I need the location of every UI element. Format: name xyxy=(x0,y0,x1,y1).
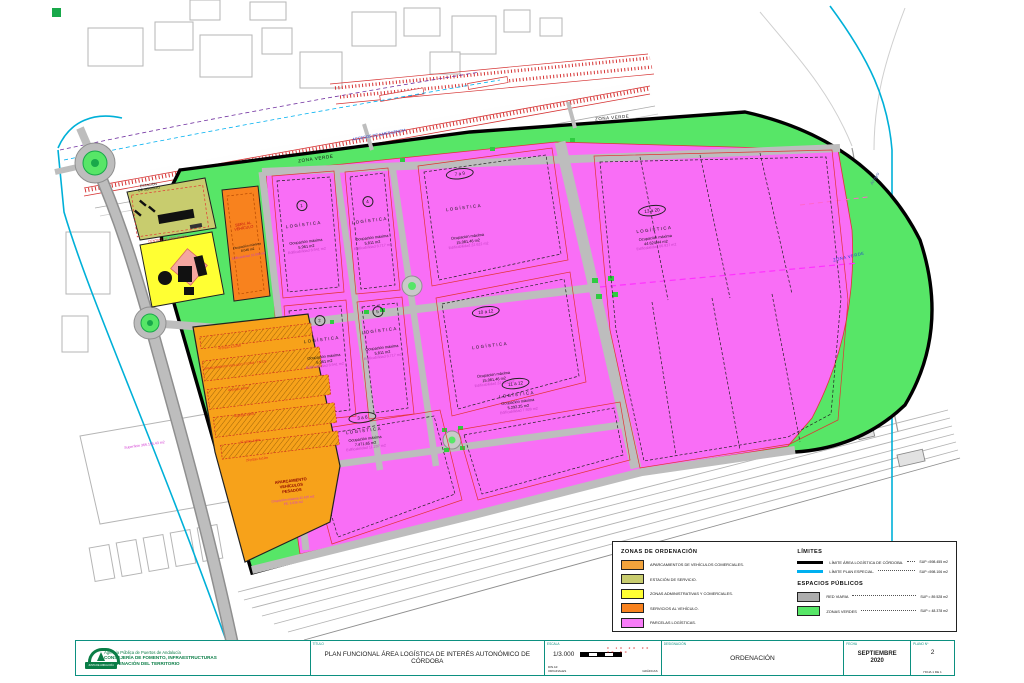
agency-cell: JUNTA DE ANDALUCÍA Agencia Pública de Pu… xyxy=(76,641,311,675)
dotted-leader xyxy=(907,561,915,562)
parcel-name: LOGÍSTICA xyxy=(328,213,412,228)
parcel-name: LOGÍSTICA xyxy=(338,323,422,338)
designacion-value: ORDENACIÓN xyxy=(662,641,844,675)
parcel-badge: 1 xyxy=(295,200,307,212)
parcel-badge: 7 a 9 xyxy=(445,167,474,181)
legend-box: ZONAS DE ORDENACIÓN APARCAMIENTOS DE VEH… xyxy=(612,541,957,632)
line-sample-cyan xyxy=(797,570,823,573)
fecha-year: 2020 xyxy=(870,658,883,666)
din-note: DIN A3 ORIGINALES xyxy=(548,666,566,673)
designacion-label: DESIGNACIÓN xyxy=(664,642,686,646)
legend-item-aparcamientos: APARCAMIENTOS DE VEHÍCULOS COMERCIALES. xyxy=(621,560,797,570)
parcel-label-7-9: 7 a 9 LOGÍSTICA Ocupación máxima 15.081,… xyxy=(417,163,510,253)
legend-limites-column: LÍMITES LÍMITE ÁREA LOGÍSTICA DE CÓRDOBA… xyxy=(797,549,948,624)
legend-limites-title: LÍMITES xyxy=(797,549,948,555)
legend-item-limite-area: LÍMITE ÁREA LOGÍSTICA DE CÓRDOBA. SUP =5… xyxy=(797,560,948,565)
designacion-cell: DESIGNACIÓN ORDENACIÓN xyxy=(662,641,845,675)
plan-sheet: ZONA VERDE ZONA VERDE ZONA VERDE ACCESOS… xyxy=(0,0,1024,683)
swatch-aparcamientos xyxy=(621,560,644,570)
corner-mark xyxy=(52,8,61,17)
logo-triangle xyxy=(97,652,105,661)
legend-item-red-viaria: RED VIARIA SUP = 89.528 m2 xyxy=(797,592,948,602)
escala-label: ESCALA xyxy=(547,642,560,646)
line-sample-black xyxy=(797,561,823,564)
legend-item-parcelas: PARCELAS LOGÍSTICAS. xyxy=(621,618,797,628)
parcel-badge: 11 a 12 xyxy=(501,376,530,390)
titulo-cell: TÍTULO PLAN FUNCIONAL ÁREA LOGÍSTICA DE … xyxy=(311,641,545,675)
parcel-name: LOGÍSTICA xyxy=(448,338,532,353)
swatch-zonas-verdes xyxy=(797,606,820,616)
swatch-parcelas xyxy=(621,618,644,628)
legend-label: ZONAS VERDES xyxy=(826,609,856,614)
din-line2: ORIGINALES xyxy=(548,670,566,673)
fecha-label: FECHA xyxy=(846,642,857,646)
legend-label: APARCAMIENTOS DE VEHÍCULOS COMERCIALES. xyxy=(650,562,744,567)
swatch-administrativas xyxy=(621,589,644,599)
legend-zonas-title: ZONAS DE ORDENACIÓN xyxy=(621,549,797,555)
legend-label: ZONAS ADMINISTRATIVAS Y COMERCIALES. xyxy=(650,591,733,596)
legend-espacios-title: ESPACIOS PÚBLICOS xyxy=(797,581,948,587)
swatch-red-viaria xyxy=(797,592,820,602)
escala-cell: ESCALA 1/3.000 0 10 20 30 40 50 DIN A3 O… xyxy=(545,641,662,675)
parcel-badge: 13 a 20 xyxy=(637,203,666,217)
plano-cell: PLANO Nº 2 HOJA 1 DE 1 xyxy=(911,641,954,675)
legend-label: LÍMITE ÁREA LOGÍSTICA DE CÓRDOBA. xyxy=(829,560,903,565)
scale-numbers: 0 10 20 30 40 50 xyxy=(607,646,661,654)
legend-label: RED VIARIA xyxy=(826,594,848,599)
title-block: JUNTA DE ANDALUCÍA Agencia Pública de Pu… xyxy=(75,640,955,676)
parcel-badge: 3 a 6 xyxy=(348,410,377,424)
legend-sup: SUP =598.455 m2 xyxy=(919,560,948,564)
fecha-month: SEPTIEMBRE xyxy=(858,651,897,659)
legend-zonas-column: ZONAS DE ORDENACIÓN APARCAMIENTOS DE VEH… xyxy=(621,549,797,624)
parcel-badge: 5 xyxy=(371,306,383,318)
legend-sup: SUP =598.106 m2 xyxy=(919,570,948,574)
legend-sup: SUP = 89.528 m2 xyxy=(920,595,948,599)
legend-item-limite-plan: LÍMITE PLAN ESPECIAL. SUP =598.106 m2 xyxy=(797,569,948,574)
legend-item-estacion: ESTACIÓN DE SERVICIO. xyxy=(621,574,797,584)
parcel-label-4: 4 LOGÍSTICA Ocupación máxima 5.811 m2 Ed… xyxy=(325,191,415,254)
parcel-label-5: 5 LOGÍSTICA Ocupación máxima 5.811 m2 Ed… xyxy=(335,301,425,364)
legend-sup: SUP = 48.378 m2 xyxy=(920,609,948,613)
parcel-badge: 4 xyxy=(361,196,373,208)
plano-number: 2 xyxy=(911,649,954,656)
dotted-leader xyxy=(878,570,915,571)
parcel-badge: 2 xyxy=(313,315,325,327)
junta-andalucia-logo: JUNTA DE ANDALUCÍA xyxy=(81,646,121,672)
parcel-badge: 10 a 12 xyxy=(471,305,500,319)
escala-value: 1/3.000 xyxy=(553,651,574,658)
swatch-servicios xyxy=(621,603,644,613)
hoja-note: HOJA 1 DE 1 xyxy=(913,670,952,674)
legend-label: SERVICIOS AL VEHÍCULO. xyxy=(650,606,699,611)
parcel-name: LOGÍSTICA xyxy=(422,200,506,215)
legend-label: ESTACIÓN DE SERVICIO. xyxy=(650,577,697,582)
logo-text: JUNTA DE ANDALUCÍA xyxy=(85,662,117,669)
titulo-label: TÍTULO xyxy=(313,642,324,646)
legend-label: LÍMITE PLAN ESPECIAL. xyxy=(829,569,874,574)
swatch-estacion xyxy=(621,574,644,584)
dotted-leader xyxy=(861,610,916,611)
legend-item-zonas-verdes: ZONAS VERDES SUP = 48.378 m2 xyxy=(797,606,948,616)
legend-item-servicios: SERVICIOS AL VEHÍCULO. xyxy=(621,603,797,613)
legend-label: PARCELAS LOGÍSTICAS. xyxy=(650,620,696,625)
plano-label: PLANO Nº xyxy=(913,642,928,646)
graficas-note: GRÁFICAS xyxy=(642,669,657,673)
dotted-leader xyxy=(852,595,916,596)
plan-title: PLAN FUNCIONAL ÁREA LOGÍSTICA DE INTERÉS… xyxy=(311,651,544,665)
fecha-cell: FECHA SEPTIEMBRE 2020 xyxy=(844,641,911,675)
legend-item-administrativas: ZONAS ADMINISTRATIVAS Y COMERCIALES. xyxy=(621,589,797,599)
